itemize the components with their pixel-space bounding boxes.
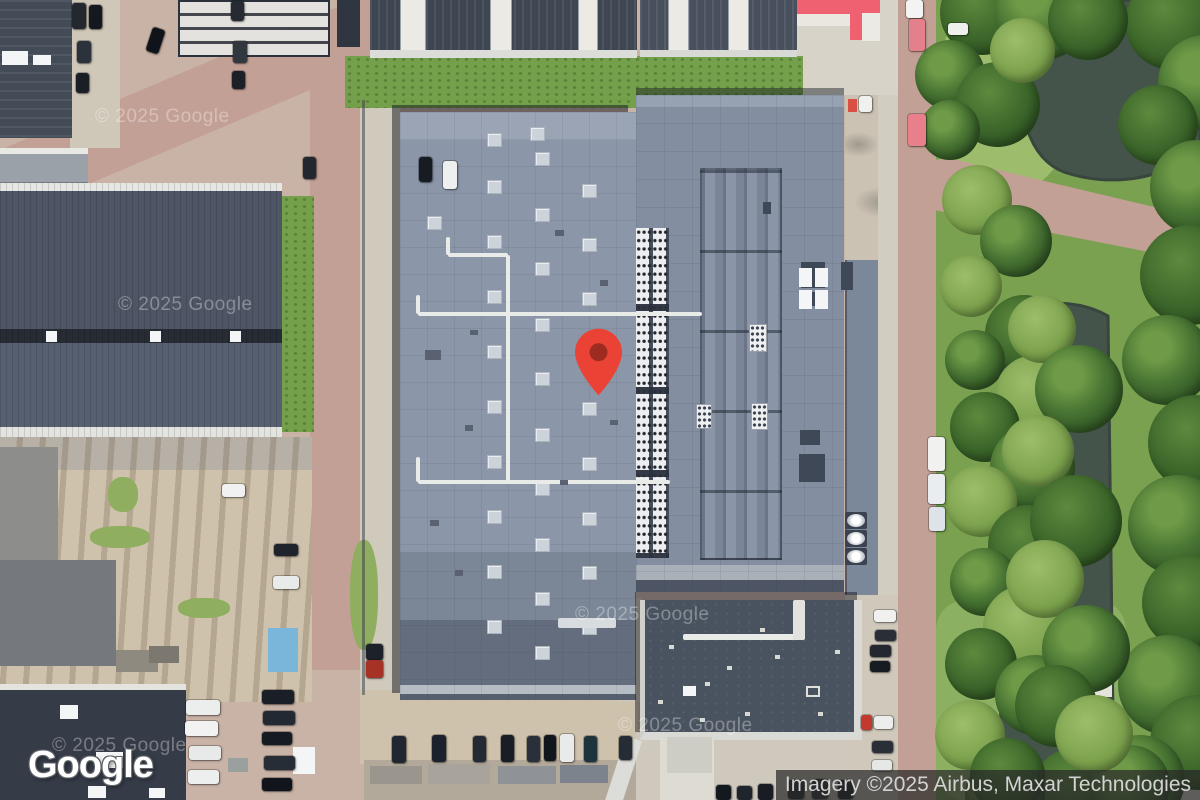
- google-watermark: © 2025 Google: [618, 715, 753, 737]
- overlay-layer: Google Imagery ©2025 Airbus, Maxar Techn…: [0, 0, 1200, 800]
- google-watermark: © 2025 Google: [52, 735, 187, 757]
- google-watermark: © 2025 Google: [118, 294, 253, 316]
- imagery-attribution: Imagery ©2025 Airbus, Maxar Technologies: [776, 770, 1200, 800]
- google-watermark: © 2025 Google: [575, 604, 710, 626]
- map-canvas[interactable]: Google Imagery ©2025 Airbus, Maxar Techn…: [0, 0, 1200, 800]
- google-watermark: © 2025 Google: [95, 106, 230, 128]
